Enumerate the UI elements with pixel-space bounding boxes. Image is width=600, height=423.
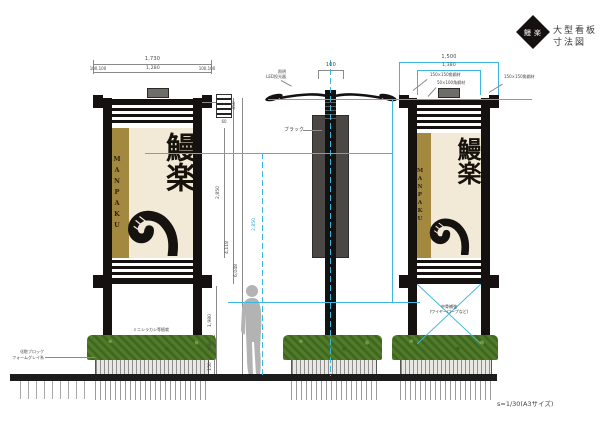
frame-height-dimline [233, 98, 234, 284]
front-bottom-slats [112, 260, 194, 277]
human-scale-figure [234, 284, 270, 376]
level-line-top [268, 99, 532, 100]
ground-hatch-front-sign [95, 381, 209, 400]
back-bottom-endcap-right [489, 275, 499, 288]
reference-line-right [392, 99, 393, 303]
lighting-label-line2: LED投光器 [250, 74, 286, 79]
front-banner-roman-text: MANPAKU [113, 134, 121, 252]
total-height-dimension: 6,048 [234, 264, 239, 277]
front-top-bar [93, 99, 212, 105]
front-banner: MANPAKU 鰻楽 [112, 128, 194, 258]
ground-hatch-left [20, 381, 90, 399]
side-base-block [291, 359, 377, 375]
front-top-slats [112, 108, 194, 125]
back-outer-ext-right [498, 62, 499, 95]
back-top-endcap-left [399, 95, 409, 108]
front-segment-dimline [93, 72, 212, 73]
front-banner-kanji: 鰻楽 [136, 132, 192, 192]
steel-post-label-left: 150×150角鋼材 [430, 72, 461, 77]
steel-post-leader-right [489, 84, 503, 93]
back-inner-width-dimline [417, 70, 481, 71]
clearance-dimline [216, 286, 217, 375]
back-inner-ext-right [480, 70, 481, 95]
back-post-right [481, 98, 490, 375]
back-inner-ext-left [417, 70, 418, 95]
panel-height-dimline [224, 128, 225, 258]
steel-beam-label: 50×100角鋼材 [437, 80, 465, 85]
front-edge-left-dimension: 100,100 [84, 66, 112, 71]
brace-label-line2: (ワイヤーロープなど) [427, 309, 471, 314]
frame-height-dimension: 4,118 [225, 241, 230, 254]
panel-height-dimension: 2,850 [216, 186, 221, 199]
front-panel-width-dimension: 1,280 [112, 66, 194, 71]
back-top-endcap-right [489, 95, 499, 108]
drawing-sheet: 鰻楽 大型看板 寸法図 2,850 1,730 100,100 1,280 10… [0, 0, 600, 423]
back-bottom-slats [417, 260, 481, 277]
back-floodlight-box [438, 88, 460, 98]
brace-label: 中骨補強 (ワイヤーロープなど) [427, 304, 471, 314]
drawing-subtitle: 寸法図 [553, 35, 586, 48]
back-top-slats [417, 108, 481, 131]
block-label-line1: 化粧ブロック [4, 349, 44, 354]
hedge-height-dimension: 400 [208, 342, 213, 351]
center-span-dimension: 2,850 [252, 218, 257, 231]
detail-height-dimension: 450 [232, 101, 237, 110]
front-hedge [87, 335, 216, 360]
ground-line [10, 374, 497, 381]
pole-width-tick-right [343, 70, 344, 79]
front-top-endcap-left [93, 95, 103, 108]
front-overall-width-dimension: 1,730 [93, 56, 212, 62]
front-post-right [193, 98, 202, 375]
front-floodlight-box [147, 88, 169, 98]
back-banner-roman-text: MANPAKU [417, 139, 423, 252]
scale-note: s=1/30(A3サイズ) [497, 398, 553, 408]
ground-hatch-side-pole [291, 381, 377, 400]
clearance-dimension: 1,980 [208, 314, 213, 327]
back-bottom-endcap-left [399, 275, 409, 288]
front-bottom-bar [93, 278, 212, 284]
level-line-panel [145, 153, 392, 154]
black-label-leader [303, 130, 322, 131]
planting-label: ミニシラカシ等植栽 [133, 327, 169, 332]
back-inner-width-dimension: 1,380 [417, 63, 481, 68]
lamp-arms [264, 84, 398, 106]
eel-illustration [425, 217, 477, 255]
front-post-left [103, 98, 112, 375]
side-hedge [283, 335, 382, 360]
level-line-lower [228, 302, 420, 303]
front-bottom-endcap-left [93, 275, 103, 288]
back-banner-kanji: 鰻楽 [437, 137, 479, 185]
front-edge-right-dimension: 100,100 [193, 66, 221, 71]
brand-logo-text: 鰻楽 [517, 28, 551, 38]
black-finish-label: ブラック [284, 127, 304, 133]
reference-line-center [262, 153, 263, 375]
detail-leader [202, 102, 216, 103]
pole-centerline [330, 60, 331, 376]
steel-post-label-right: 150×150角鋼材 [504, 74, 535, 79]
ground-hatch-back-sign [400, 381, 492, 400]
front-bottom-endcap-right [202, 275, 212, 288]
back-outer-width-dimension: 1,500 [399, 54, 499, 60]
detail-pitch-dimension: 60 [216, 119, 232, 124]
pole-width-dimline [318, 70, 344, 71]
back-base-block [400, 359, 492, 375]
back-post-left [408, 98, 417, 375]
base-height-dimline [214, 359, 215, 375]
base-height-dimension: 150 [208, 362, 213, 371]
eel-illustration [122, 210, 188, 256]
slat-detail-box [216, 94, 232, 118]
steel-beam-leader [428, 87, 437, 97]
front-base-block [95, 359, 209, 375]
block-label-leader [45, 357, 95, 358]
back-banner: MANPAKU 鰻楽 [417, 133, 481, 258]
steel-post-leader-left [413, 79, 428, 91]
pole-width-tick-left [318, 70, 319, 79]
block-label-line2: フォームグレイ系 [0, 355, 44, 360]
back-outer-ext-left [399, 62, 400, 95]
pole-width-dimension: 100 [318, 62, 344, 68]
